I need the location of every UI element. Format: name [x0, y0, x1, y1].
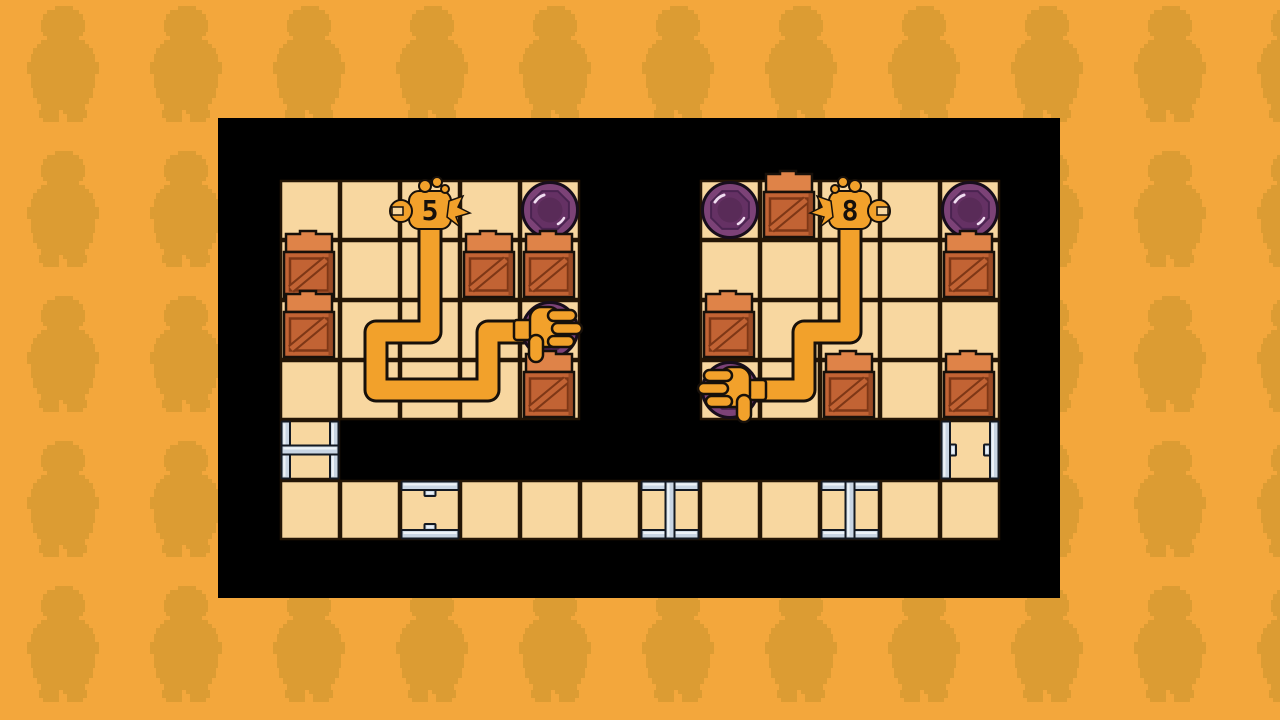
- arm-count-label: 8: [842, 194, 859, 227]
- target-disc[interactable]: [943, 183, 998, 238]
- floor-tile: [281, 361, 339, 419]
- game-stage: 58: [0, 0, 1280, 720]
- crate[interactable]: [464, 231, 514, 297]
- crate[interactable]: [704, 291, 754, 357]
- floor-tile: [461, 481, 519, 539]
- floor-tile: [941, 481, 999, 539]
- background-figure-icon: [1134, 441, 1206, 557]
- background-figure-icon: [888, 586, 960, 702]
- crate[interactable]: [284, 291, 334, 357]
- target-disc[interactable]: [523, 183, 578, 238]
- background-figure-icon: [273, 586, 345, 702]
- background-figure-icon: [1257, 6, 1280, 122]
- background-figure-icon: [519, 586, 591, 702]
- background-figure-icon: [27, 6, 99, 122]
- background-figure-icon: [27, 586, 99, 702]
- background-figure-icon: [888, 6, 960, 122]
- background-figure-icon: [150, 586, 222, 702]
- floor-tile: [761, 481, 819, 539]
- floor-tile: [581, 481, 639, 539]
- puzzle-board: 58: [218, 118, 1060, 598]
- crate[interactable]: [764, 171, 814, 237]
- background-figure-icon: [150, 296, 222, 412]
- floor-tile: [521, 481, 579, 539]
- background-figure-icon: [1011, 586, 1083, 702]
- background-figure-icon: [1011, 6, 1083, 122]
- background-figure-icon: [765, 6, 837, 122]
- background-figure-icon: [1257, 296, 1280, 412]
- background-figure-icon: [642, 6, 714, 122]
- background-figure-icon: [1134, 586, 1206, 702]
- background-figure-icon: [27, 151, 99, 267]
- background-figure-icon: [150, 6, 222, 122]
- floor-tile: [341, 481, 399, 539]
- crate[interactable]: [944, 231, 994, 297]
- crate[interactable]: [284, 231, 334, 297]
- puzzle-board-canvas: 58: [218, 118, 1060, 598]
- background-figure-icon: [150, 151, 222, 267]
- floor-tile: [761, 241, 819, 299]
- background-figure-icon: [519, 6, 591, 122]
- background-figure-icon: [396, 586, 468, 702]
- background-figure-icon: [1134, 296, 1206, 412]
- floor-tile: [881, 481, 939, 539]
- floor-tile: [881, 361, 939, 419]
- crate[interactable]: [824, 351, 874, 417]
- floor-layer: [281, 181, 999, 539]
- background-figure-icon: [396, 6, 468, 122]
- background-figure-icon: [765, 586, 837, 702]
- floor-tile: [281, 481, 339, 539]
- floor-tile: [881, 301, 939, 359]
- floor-tile: [701, 481, 759, 539]
- background-figure-icon: [642, 586, 714, 702]
- target-disc[interactable]: [703, 183, 758, 238]
- background-figure-icon: [27, 441, 99, 557]
- floor-tile: [881, 241, 939, 299]
- background-figure-icon: [1134, 151, 1206, 267]
- crate[interactable]: [944, 351, 994, 417]
- background-figure-icon: [150, 441, 222, 557]
- background-figure-icon: [1257, 586, 1280, 702]
- background-figure-icon: [1257, 151, 1280, 267]
- background-figure-icon: [1134, 6, 1206, 122]
- background-figure-icon: [1257, 441, 1280, 557]
- floor-tile: [341, 241, 399, 299]
- background-figure-icon: [273, 6, 345, 122]
- arm-count-label: 5: [422, 194, 439, 227]
- background-figure-icon: [27, 296, 99, 412]
- crate[interactable]: [524, 231, 574, 297]
